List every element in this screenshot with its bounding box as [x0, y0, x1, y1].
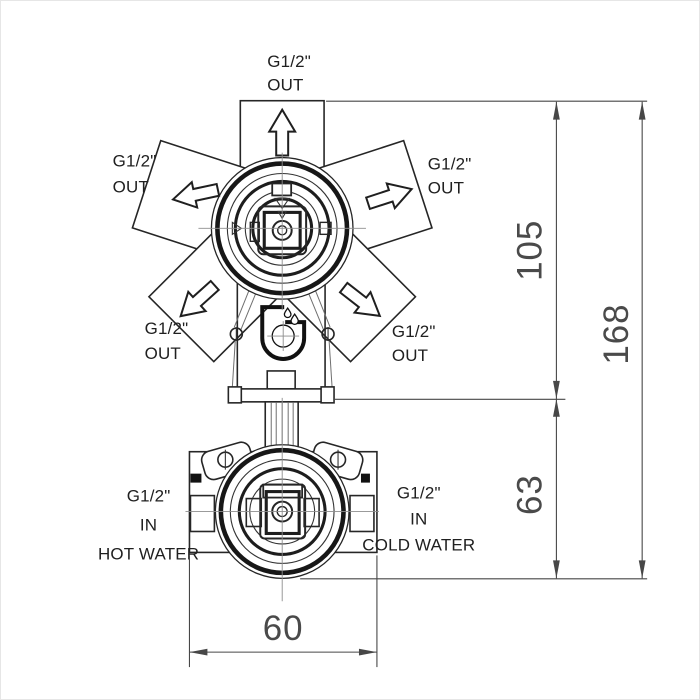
neck-cap — [267, 371, 295, 389]
port-lower-left-flow-label: OUT — [145, 344, 181, 363]
dimension-63-value: 63 — [510, 474, 549, 515]
collar — [233, 389, 330, 402]
dimension-60-value: 60 — [263, 609, 304, 648]
inlet-cold-flow-label: IN — [410, 509, 427, 528]
inlet-cold-medium-label: COLD WATER — [362, 535, 475, 554]
port-top-flow-label: OUT — [267, 76, 303, 95]
port-upper-right-flow-label: OUT — [428, 178, 464, 197]
section-mark-left — [190, 474, 201, 483]
port-upper-left-thread-label: G1/2" — [113, 152, 157, 171]
technical-drawing-page: G1/2" OUT G1/2" OUT G1/2" OUT G1/2" OUT … — [0, 0, 700, 700]
dimension-105-value: 105 — [510, 220, 549, 281]
index-notch — [272, 183, 291, 195]
collar-tab-left — [228, 387, 241, 403]
port-top-thread-label: G1/2" — [267, 52, 311, 71]
droplet-icon — [284, 308, 291, 317]
section-mark-right — [361, 474, 370, 483]
port-upper-left-flow-label: OUT — [113, 177, 149, 196]
dimension-168-value: 168 — [597, 303, 636, 364]
dimension-168: 168 — [597, 102, 645, 579]
dimension-105: 105 — [510, 102, 559, 399]
inlet-hot-thread-label: G1/2" — [127, 487, 171, 506]
port-lower-right-thread-label: G1/2" — [392, 322, 436, 341]
inlet-hot-flow-label: IN — [140, 515, 157, 534]
inlet-cold-thread-label: G1/2" — [397, 484, 441, 503]
droplet-icon — [291, 314, 298, 324]
dimension-63: 63 — [510, 399, 559, 578]
port-lower-left-thread-label: G1/2" — [145, 319, 189, 338]
valve-installation-diagram: G1/2" OUT G1/2" OUT G1/2" OUT G1/2" OUT … — [1, 1, 699, 699]
port-upper-right-thread-label: G1/2" — [428, 155, 472, 174]
brand-logo-icon — [262, 307, 304, 359]
side-tab-left — [190, 496, 214, 532]
side-tab-right — [350, 496, 374, 532]
port-lower-right-flow-label: OUT — [392, 346, 428, 365]
inlet-hot-medium-label: HOT WATER — [98, 544, 199, 563]
collar-tab-right — [321, 387, 334, 403]
